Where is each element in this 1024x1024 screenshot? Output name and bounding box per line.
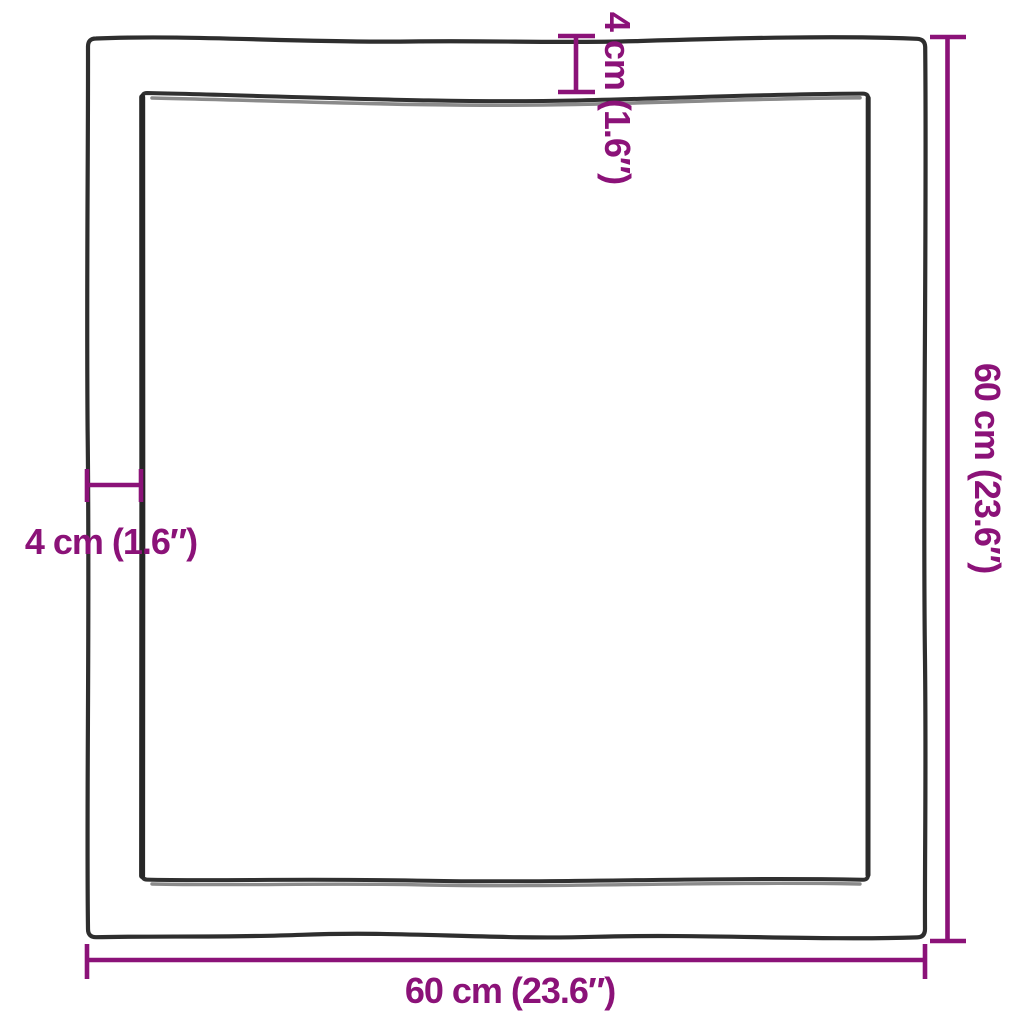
inner-right-edge xyxy=(868,98,869,875)
tabletop-inner-edge xyxy=(142,93,869,886)
dimension-left-thickness xyxy=(87,469,141,502)
tabletop-inner-path xyxy=(142,93,869,881)
dimension-diagram: 4 cm (1.6″) 4 cm (1.6″) 60 cm (23.6″) 60… xyxy=(0,0,1024,1024)
inner-bevel-bottom xyxy=(152,883,860,885)
dimension-label-top-thickness: 4 cm (1.6″) xyxy=(599,12,635,184)
dimension-label-left-thickness: 4 cm (1.6″) xyxy=(25,524,197,560)
dimension-right-height xyxy=(930,37,966,941)
tabletop-outer-path xyxy=(87,37,925,938)
dimension-label-bottom-width: 60 cm (23.6″) xyxy=(405,973,615,1009)
tabletop-outer-edge xyxy=(87,37,925,938)
dimension-top-thickness xyxy=(558,36,595,92)
dimension-label-right-height: 60 cm (23.6″) xyxy=(969,363,1005,573)
diagram-graphics xyxy=(0,0,1024,1024)
